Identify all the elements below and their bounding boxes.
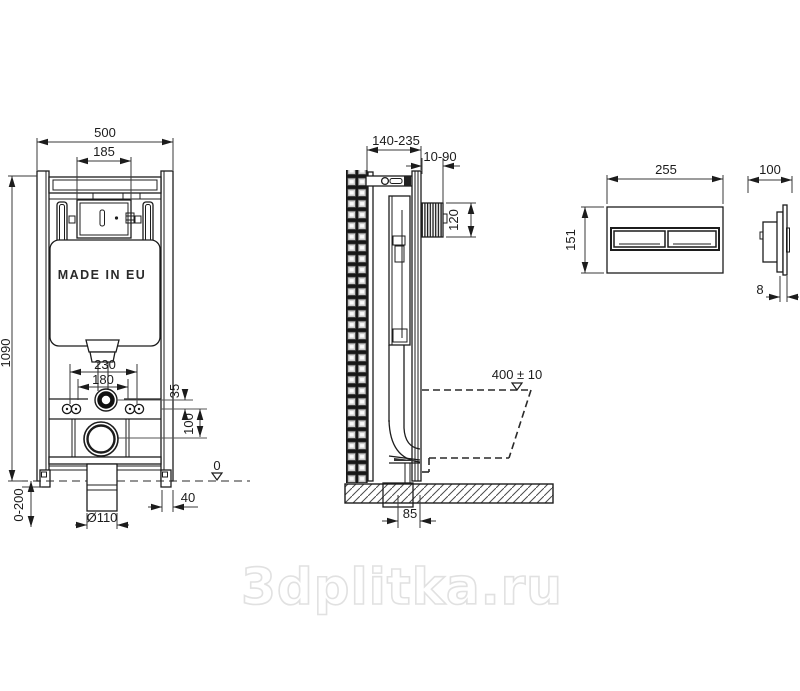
bowl-height-marker (512, 383, 522, 390)
dim-drain-wall-distance: 85 (403, 506, 417, 521)
plate-side-view: 100 8 (748, 162, 799, 302)
cross-member (49, 389, 161, 419)
side-view: 140-235 10-90 120 400 ± 10 85 (345, 133, 553, 528)
made-in-eu-label: MADE IN EU (58, 268, 147, 282)
front-view: MADE IN EU (0, 125, 250, 529)
dim-bowl-height: 400 ± 10 (492, 367, 543, 382)
plate-button-large (614, 231, 665, 247)
dim-recess-height: 120 (446, 209, 461, 231)
dim-bolt-spacing-outer: 230 (94, 357, 116, 372)
dim-depth-range: 140-235 (372, 133, 420, 148)
installation-drawing: 3dplitka.ru (0, 0, 800, 691)
dim-foot-width: 40 (181, 490, 195, 505)
dim-flush-pipe-offset: 35 (167, 384, 182, 398)
tiled-wall (346, 170, 367, 483)
dim-foot-adjustment: 0-200 (11, 488, 26, 521)
dim-drain-diameter: Ø110 (87, 510, 118, 525)
floor (345, 484, 553, 503)
plate-front-view: 255 151 (563, 162, 723, 273)
dim-plate-height: 151 (563, 229, 578, 251)
dim-recess-depth-range: 10-90 (423, 149, 456, 164)
dim-plate-width: 255 (655, 162, 677, 177)
datum-zero-marker (212, 473, 222, 480)
dim-height-frame: 1090 (0, 339, 13, 368)
flush-unit-box (77, 200, 134, 238)
bowl-outline (422, 390, 531, 472)
dim-drain-offset: 100 (181, 413, 196, 435)
dim-plate-depth: 100 (759, 162, 781, 177)
recess-sleeve (422, 203, 447, 237)
technical-drawing-page: 3dplitka.ru (0, 0, 800, 691)
dim-plate-flange-thickness: 8 (756, 282, 763, 297)
watermark-text: 3dplitka.ru (241, 558, 563, 616)
dim-bolt-spacing-inner: 180 (92, 372, 114, 387)
dim-width-total: 500 (94, 125, 116, 140)
datum-zero-label: 0 (213, 458, 220, 473)
dim-width-flush-unit: 185 (93, 144, 115, 159)
plate-button-small (668, 231, 716, 247)
